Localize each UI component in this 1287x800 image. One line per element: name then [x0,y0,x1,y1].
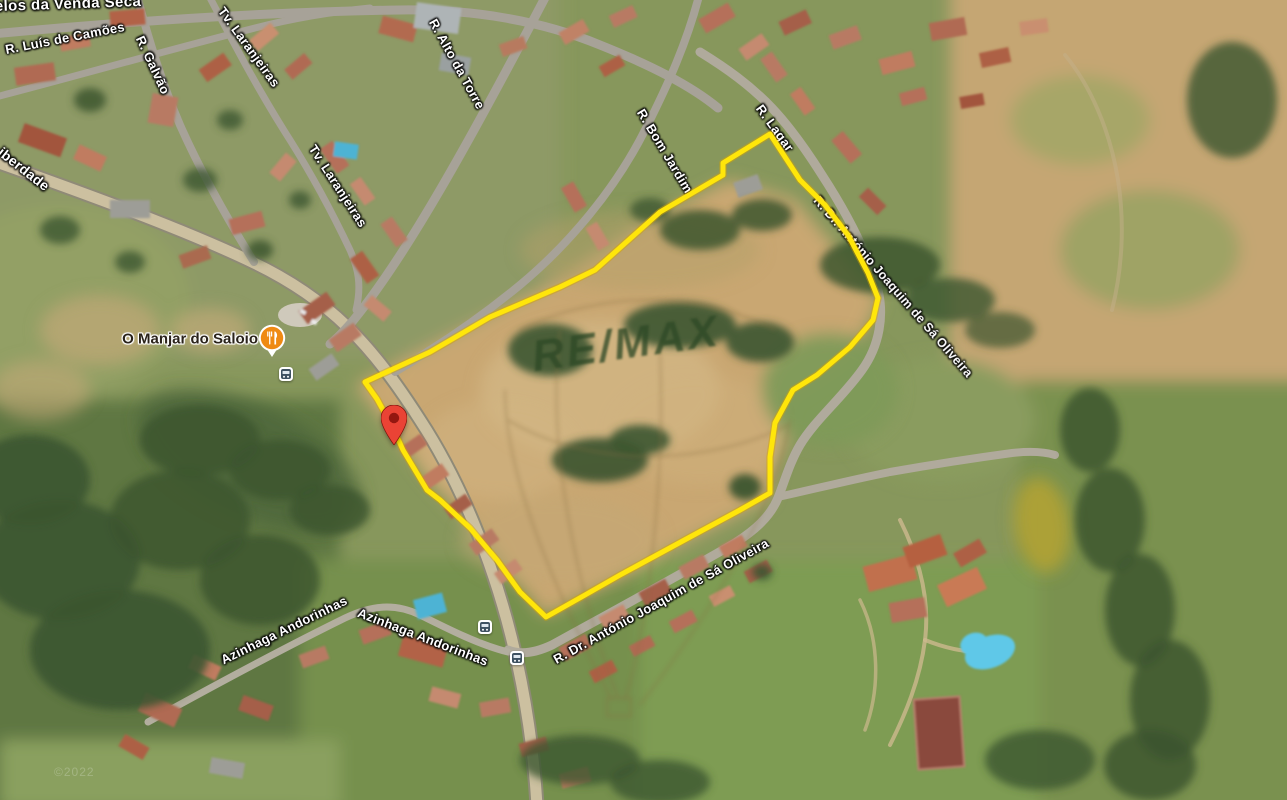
location-pin[interactable] [381,405,407,450]
trees [0,42,1277,800]
bus-stop-icon-1[interactable] [279,367,293,381]
satellite-map[interactable]: RE/MAX elos da Venda Seca R. Luís de Cam… [0,0,1287,800]
street-label-tv-laranjeiras-1: Tv. Laranjeiras [215,4,283,90]
street-label-r-luis-de-camoes: R. Luís de Camões [4,19,126,57]
map-attribution: ©2022 [54,765,95,779]
balloon-etching [505,300,790,716]
bus-stop-icon-2[interactable] [478,620,492,634]
street-label-r-dr-antonio-right: R. Dr. António Joaquim de Sá Oliveira [811,194,976,381]
restaurant-poi-marker[interactable] [258,324,286,358]
street-label-r-alto-da-torre: R. Alto da Torre [426,16,488,111]
street-label-r-galvao: R. Galvão [133,33,173,96]
field-remax-vegetation-text: RE/MAX [529,306,723,381]
roads [0,0,1122,800]
street-label-r-dr-antonio-bottom: R. Dr. António Joaquim de Sá Oliveira [551,535,772,666]
buildings [14,2,1049,789]
street-label-tv-laranjeiras-2: Tv. Laranjeiras [306,142,370,230]
locality-label-venda-seca: elos da Venda Seca [0,0,141,15]
parcel-boundary [365,134,878,617]
street-label-liberdade-partial: iberdade [0,144,53,194]
bus-stop-icon-3[interactable] [510,651,524,665]
street-label-azinhaga-andorinhas-1: Azinhaga Andorinhas [218,593,349,667]
field-patches [0,210,1076,585]
street-label-azinhaga-andorinhas-2: Azinhaga Andorinhas [356,605,491,669]
street-label-r-bom-jardim: R. Bom Jardim [634,106,696,196]
street-label-r-lagar: R. Lagar [753,102,797,155]
poi-label-restaurant[interactable]: O Manjar do Saloio [122,331,258,348]
